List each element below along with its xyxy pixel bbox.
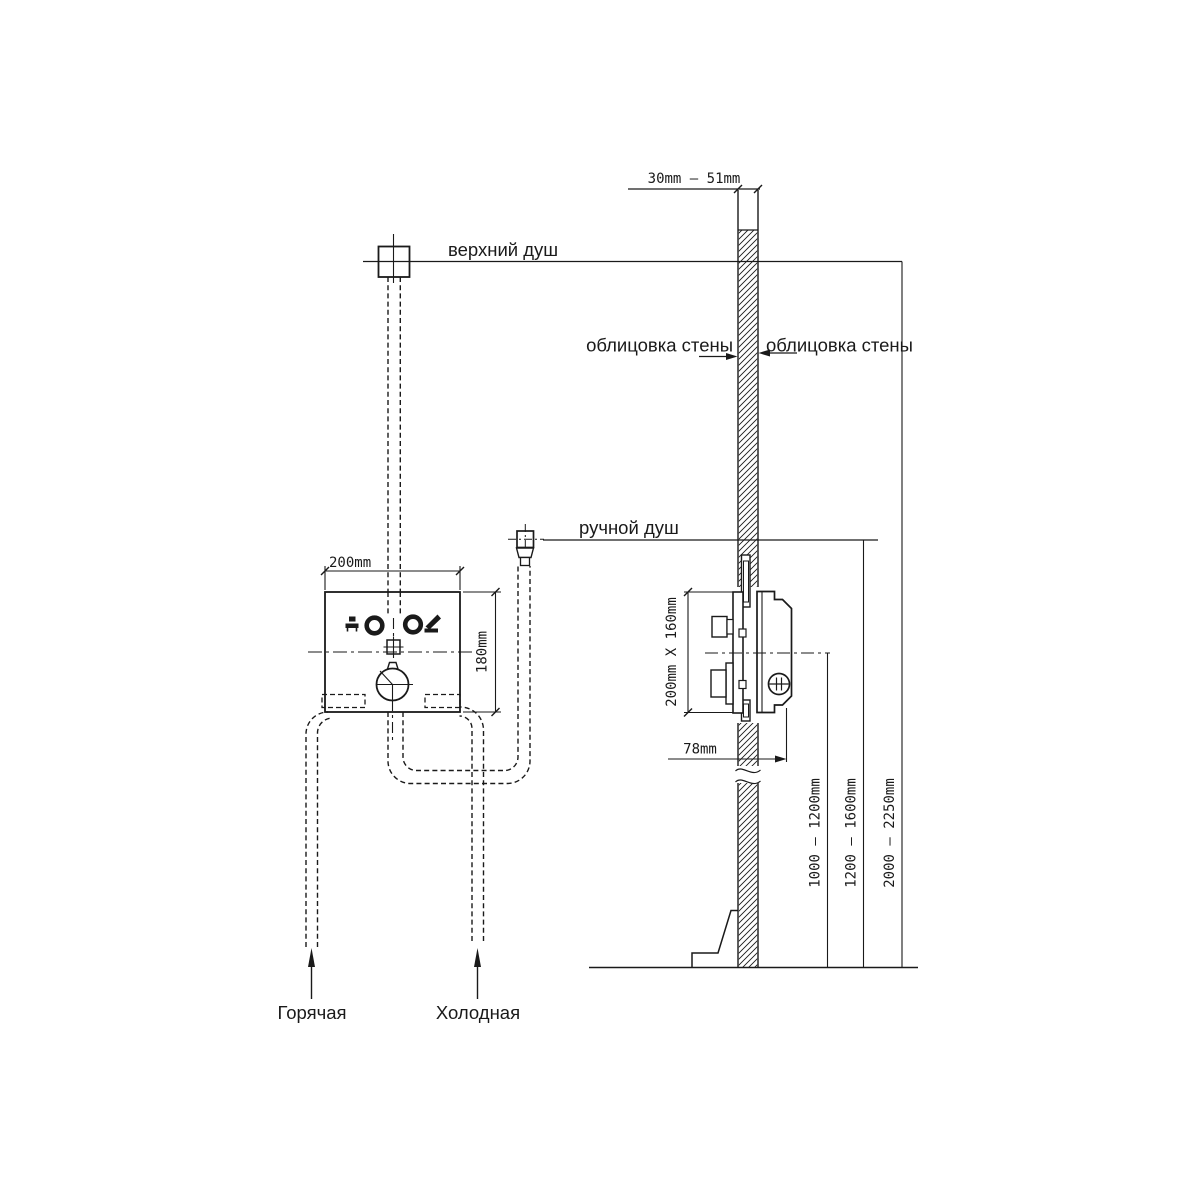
port-stub-bottom-plate bbox=[726, 663, 733, 704]
wall-thickness-dim: 30mm — 51mm bbox=[628, 171, 762, 193]
hand-shower-height-label: 1200 — 1600mm bbox=[844, 778, 860, 888]
top-shower-height-label: 2000 — 2250mm bbox=[882, 778, 898, 888]
hose-fitting-neck bbox=[521, 558, 530, 566]
diagram-canvas: 30mm — 51mm облицовка стены облицовка ст… bbox=[0, 0, 1200, 1200]
hot-pipe-inner bbox=[318, 718, 333, 947]
cold-water-label: Холодная bbox=[436, 1002, 520, 1023]
depth-arrow-head bbox=[775, 756, 787, 763]
cold-arrow-head bbox=[474, 948, 481, 967]
cladding-arrow-right-head bbox=[759, 350, 771, 357]
port-stub-bottom bbox=[711, 670, 726, 697]
hand-shower-outlet bbox=[508, 524, 544, 566]
fixing-screw-top bbox=[739, 629, 746, 637]
hand-shower-label: ручной душ bbox=[579, 517, 679, 538]
icon-part bbox=[349, 617, 356, 622]
port-stub-top bbox=[712, 617, 727, 638]
wall-thickness-label: 30mm — 51mm bbox=[648, 171, 741, 187]
depth-label: 78mm bbox=[683, 742, 717, 758]
icon-part bbox=[425, 629, 439, 633]
cold-water-pipe bbox=[460, 707, 484, 941]
front-width-label: 200mm bbox=[329, 555, 371, 571]
wall-hatch-lower bbox=[739, 783, 757, 968]
port-stub-top-neck bbox=[727, 620, 733, 635]
wall-hatch-upper bbox=[739, 230, 757, 587]
top-shower-label: верхний душ bbox=[448, 239, 558, 260]
cladding-label-right: облицовка стены bbox=[766, 335, 913, 356]
hose-fitting-nut bbox=[517, 548, 534, 558]
hot-water-pipe bbox=[306, 712, 333, 947]
mixer-side-view bbox=[705, 555, 830, 723]
cold-water-callout: Холодная bbox=[436, 948, 520, 1023]
hot-water-label: Горячая bbox=[277, 1002, 346, 1023]
cold-pipe-inner bbox=[460, 716, 473, 941]
height-dims: 1000 — 1200mm 1200 — 1600mm 2000 — 2250m… bbox=[808, 262, 903, 968]
depth-dim: 78mm bbox=[668, 708, 787, 763]
front-width-dim: 200mm bbox=[321, 555, 464, 590]
shower-tray-profile bbox=[692, 911, 739, 968]
fixing-screw-bottom bbox=[739, 681, 746, 689]
rough-in-size-label: 200mm X 160mm bbox=[664, 597, 680, 707]
hot-water-callout: Горячая bbox=[277, 948, 346, 1023]
icon-part bbox=[346, 624, 359, 629]
hot-arrow-head bbox=[308, 948, 315, 967]
installation-diagram: 30mm — 51mm облицовка стены облицовка ст… bbox=[0, 0, 1200, 1200]
mixer-height-label: 1000 — 1200mm bbox=[808, 778, 824, 888]
front-height-label: 180mm bbox=[475, 631, 491, 673]
cladding-label-left: облицовка стены bbox=[586, 335, 733, 356]
